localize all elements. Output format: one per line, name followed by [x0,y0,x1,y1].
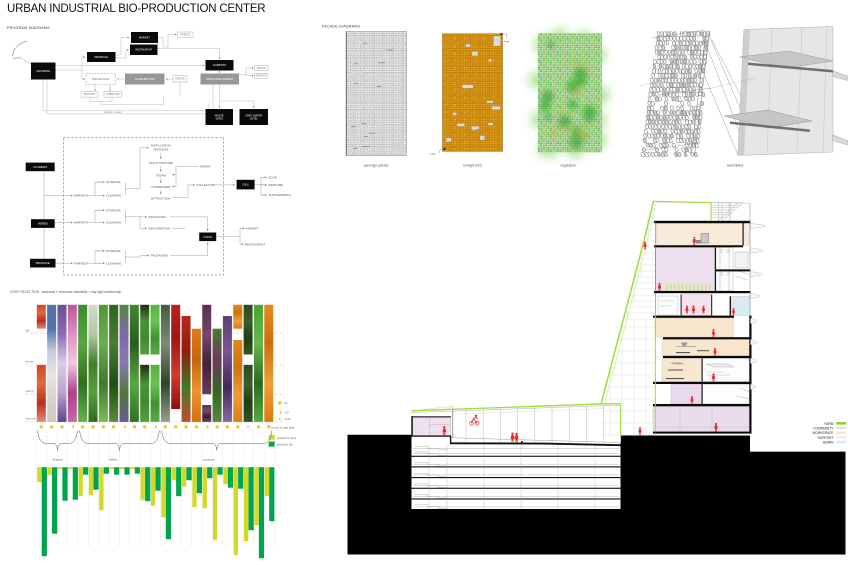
svg-text:price/lbs ($): price/lbs ($) [277,443,293,447]
svg-text:URBAN INDUSTRIAL BIO-PRODUCTIO: URBAN INDUSTRIAL BIO-PRODUCTION CENTER [7,3,265,15]
svg-text:COLLECTION: COLLECTION [196,183,215,187]
svg-text:PRODUCE: PRODUCE [94,55,108,59]
svg-text:flowers: flowers [53,458,63,462]
svg-text:CLEANING: CLEANING [106,261,122,265]
svg-text:WATER: WATER [200,165,211,169]
svg-text:PERFUME: PERFUME [269,183,284,187]
svg-text:assemblies: assemblies [727,164,744,168]
svg-text:CROP SELECTION : seasonal +: CROP SELECTION : seasonal + economic fea… [10,290,121,294]
svg-text:PACKAGING: PACKAGING [149,215,167,219]
svg-text:DEHYDRATION: DEHYDRATION [149,226,171,230]
svg-text:FOOD: FOOD [204,235,212,239]
svg-text:SUPPLEMENTS: SUPPLEMENTS [269,193,291,197]
svg-text:FRIENDS: FRIENDS [180,33,191,36]
svg-text:OILS: OILS [242,183,249,187]
svg-text:FLOWERS: FLOWERS [33,165,47,169]
svg-text:FABRICATE: FABRICATE [106,93,120,96]
svg-text:EDUCATE: EDUCATE [84,93,96,96]
svg-text:summer: summer [26,417,37,421]
svg-text:spring: spring [26,389,35,393]
svg-text:MARKET: MARKET [139,35,151,39]
svg-text:COMPOST: COMPOST [213,63,227,67]
svg-text:4.5: 4.5 [285,410,290,414]
svg-text:PACKAGING: PACKAGING [151,254,169,258]
svg-text:openings (views): openings (views) [364,164,389,168]
svg-text:CLEANING: CLEANING [106,221,122,225]
svg-text:HARVEST: HARVEST [74,261,88,265]
svg-text:FACADE DIAGRAMS: FACADE DIAGRAMS [322,25,361,29]
svg-text:EXTRACTION: EXTRACTION [151,196,170,200]
svg-text:SOAP: SOAP [269,175,277,179]
svg-text:herbs: herbs [109,458,117,462]
svg-text:HARVEST: HARVEST [74,221,88,225]
svg-text:OFFICE: OFFICE [257,67,266,70]
svg-text:RESTAURANT: RESTAURANT [135,49,152,52]
svg-text:ADMIN: ADMIN [823,441,834,445]
svg-text:FARM: FARM [824,422,833,426]
svg-text:produce: produce [203,458,214,462]
svg-text:PEOPLE: PEOPLE [175,78,185,81]
svg-text:nutrients + water: nutrients + water [104,111,122,114]
svg-text:CLEANING: CLEANING [106,194,122,198]
svg-text:HERBS: HERBS [38,222,48,226]
svg-text:0 hrs: 0 hrs [430,153,436,156]
svg-text:WASTE MANAGEMENT: WASTE MANAGEMENT [206,78,234,81]
svg-text:RESTAURANT: RESTAURANT [245,242,265,246]
svg-text:hours of day light: hours of day light [272,426,295,430]
svg-text:PROCESS: PROCESS [153,147,168,151]
svg-text:HARVEST: HARVEST [74,194,88,198]
svg-text:STEAM: STEAM [156,173,167,177]
svg-text:WORKSPACE: WORKSPACE [812,431,834,435]
svg-text:(SITE): (SITE) [250,117,257,120]
svg-text:fall: fall [26,328,30,332]
svg-text:3.25: 3.25 [285,417,291,421]
svg-text:PLANT MIXTURE: PLANT MIXTURE [149,161,173,165]
svg-text:SERVICE: SERVICE [256,75,267,78]
svg-text:MARKET: MARKET [246,226,259,230]
svg-text:CONSUMPTION: CONSUMPTION [135,77,155,81]
svg-text:(SITE): (SITE) [216,117,223,120]
svg-text:SUPPORT: SUPPORT [818,436,834,440]
svg-text:CONDENSER: CONDENSER [151,185,171,189]
svg-text:4 hrs: 4 hrs [504,41,510,44]
svg-text:STORAGE: STORAGE [106,208,121,212]
svg-text:9+: 9+ [285,401,289,405]
svg-text:STORAGE: STORAGE [106,249,121,253]
svg-text:PROGRAM DIAGRAMS: PROGRAM DIAGRAMS [7,26,50,30]
svg-text:COMMUNITY: COMMUNITY [813,427,834,431]
svg-text:winter: winter [26,359,34,363]
svg-text:yield/acre (lbs): yield/acre (lbs) [277,436,297,440]
svg-text:STORAGE: STORAGE [106,180,121,184]
svg-text:vegetation: vegetation [560,164,575,168]
svg-text:PROCESSING: PROCESSING [92,77,109,81]
svg-text:GROWING: GROWING [36,69,49,73]
svg-text:sunlight (hrs): sunlight (hrs) [463,164,482,168]
svg-text:PRODUCE: PRODUCE [36,261,50,265]
